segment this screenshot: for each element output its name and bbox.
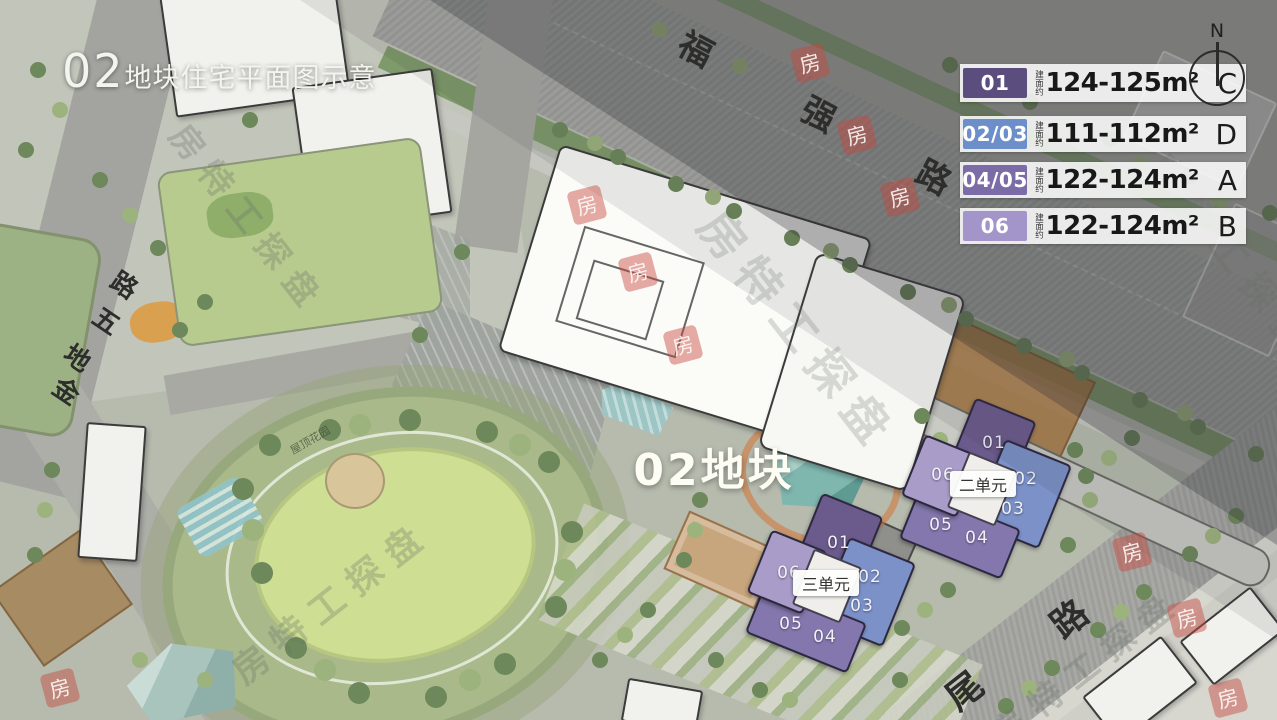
unit3-label-chip: 三单元 <box>793 570 859 596</box>
watermark-seal: 房 <box>39 667 81 709</box>
page-title-text: 地块住宅平面图示意 <box>125 56 377 95</box>
legend-prefix: 建面约 <box>1034 121 1043 147</box>
legend-prefix: 建面约 <box>1034 70 1043 96</box>
legend-type-04-05: A <box>1218 164 1237 197</box>
unit2-num-01: 01 <box>982 433 1006 453</box>
building-south-small <box>621 678 703 720</box>
legend-prefix: 建面约 <box>1034 167 1043 193</box>
page-title-number: 02 <box>62 44 125 98</box>
page-title: 02 地块住宅平面图示意 <box>62 44 377 98</box>
plot-label: 02地块 <box>633 434 794 498</box>
unit3-num-02: 02 <box>858 567 882 587</box>
legend-area-04-05: 122-124m² <box>1046 165 1199 195</box>
legend-type-06: B <box>1218 210 1237 243</box>
unit3-num-01: 01 <box>827 533 851 553</box>
legend-badge-02-03: 02/03 <box>963 119 1027 149</box>
unit2-num-03: 03 <box>1001 499 1025 519</box>
unit2-num-05: 05 <box>929 515 953 535</box>
legend-area-01: 124-125m² <box>1046 68 1199 98</box>
playground-circle <box>325 453 385 509</box>
legend-area-06: 122-124m² <box>1046 211 1199 241</box>
legend-row-06: 06 建面约 122-124m² B <box>960 208 1246 244</box>
legend-badge-01: 01 <box>963 68 1027 98</box>
unit2-num-04: 04 <box>965 528 989 548</box>
legend-prefix: 建面约 <box>1034 213 1043 239</box>
tower-west <box>77 422 146 562</box>
compass-north-label: N <box>1210 20 1224 42</box>
unit2-label-chip: 二单元 <box>950 471 1016 497</box>
legend-area-02-03: 111-112m² <box>1046 119 1199 149</box>
legend-badge-06: 06 <box>963 211 1027 241</box>
compass-circle <box>1189 50 1245 106</box>
unit3-num-04: 04 <box>813 627 837 647</box>
legend-row-04-05: 04/05 建面约 122-124m² A <box>960 162 1246 198</box>
legend-row-02-03: 02/03 建面约 111-112m² D <box>960 116 1246 152</box>
legend-type-02-03: D <box>1215 118 1237 151</box>
site-plan-map: 01 02 03 04 05 06 二单元 01 02 03 04 05 06 … <box>0 0 1277 720</box>
legend-badge-04-05: 04/05 <box>963 165 1027 195</box>
unit2-num-02: 02 <box>1014 469 1038 489</box>
unit3-num-03: 03 <box>850 596 874 616</box>
unit3-num-05: 05 <box>779 614 803 634</box>
